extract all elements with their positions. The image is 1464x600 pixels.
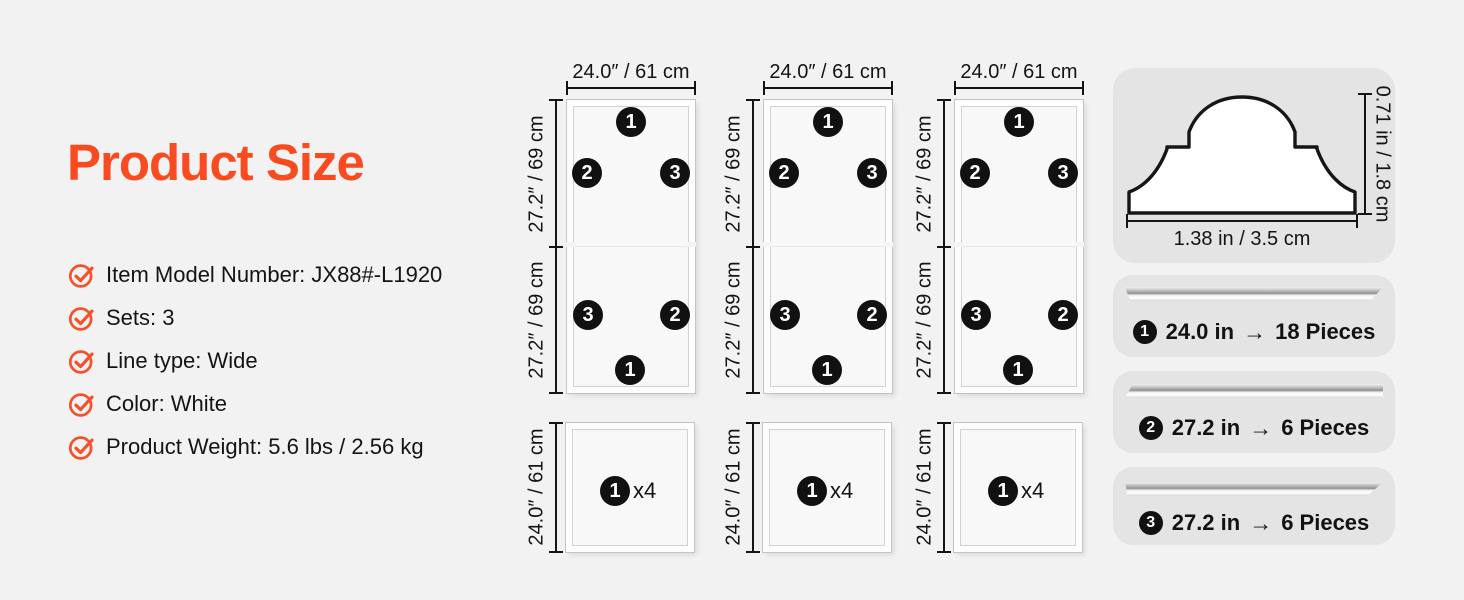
spec-item-sets: Sets: 3	[68, 303, 442, 333]
square-count-label: x4	[633, 478, 656, 504]
dim-line-profile-width	[1127, 220, 1357, 222]
badge-1: 1	[615, 355, 645, 385]
molding-frame-square	[954, 423, 1082, 552]
square-count-label: x4	[830, 478, 853, 504]
check-icon	[68, 434, 95, 461]
spec-item-color: Color: White	[68, 389, 442, 419]
molding-frame-square	[566, 423, 694, 552]
piece-card-3: 3 27.2 in → 6 Pieces	[1113, 467, 1395, 545]
dim-label-height-lower: 27.2″ / 69 cm	[526, 261, 549, 378]
arrow-right-icon: →	[1243, 319, 1266, 346]
dim-line-height-lower	[752, 247, 754, 393]
badge-3: 3	[1139, 511, 1163, 535]
dim-label-square: 24.0″ / 61 cm	[526, 428, 549, 545]
dim-label-square: 24.0″ / 61 cm	[914, 428, 937, 545]
badge-2: 2	[1048, 300, 1078, 330]
dim-line-profile-height	[1364, 94, 1366, 214]
frame-seam-right	[884, 242, 893, 247]
badge-1: 1	[813, 107, 843, 137]
piece-card-1: 1 24.0 in → 18 Pieces	[1113, 275, 1395, 357]
badge-2: 2	[572, 158, 602, 188]
molding-frame-tall	[764, 100, 892, 393]
frame-seam-left	[954, 242, 963, 247]
piece-length: 27.2 in	[1172, 510, 1240, 536]
check-icon	[68, 391, 95, 418]
layout-diagram-column-2: 24.0″ / 61 cm 1 2 3 3 2 1 27.2″ / 69 cm …	[764, 55, 892, 555]
molding-profile-drawing	[1127, 92, 1357, 216]
square-count-label: x4	[1021, 478, 1044, 504]
dim-line-width	[567, 87, 695, 89]
spec-item-model: Item Model Number: JX88#-L1920	[68, 260, 442, 290]
dim-label-height-upper: 27.2″ / 69 cm	[723, 115, 746, 232]
spec-item-model-text: Item Model Number: JX88#-L1920	[106, 262, 442, 288]
arrow-right-icon: →	[1249, 415, 1272, 442]
layout-diagram-column-1: 24.0″ / 61 cm 1 2 3 3 2 1 27.2″ / 69 cm …	[567, 55, 695, 555]
frame-mid-seam-line	[764, 246, 892, 247]
badge-2: 2	[660, 300, 690, 330]
dim-label-profile-width: 1.38 in / 3.5 cm	[1127, 228, 1357, 251]
profile-card: 0.71 in / 1.8 cm 1.38 in / 3.5 cm	[1113, 68, 1395, 263]
dim-line-width	[764, 87, 892, 89]
spec-item-line-type: Line type: Wide	[68, 346, 442, 376]
dim-line-height-lower	[555, 247, 557, 393]
badge-3: 3	[961, 300, 991, 330]
piece-count: 6 Pieces	[1281, 510, 1369, 536]
frame-seam-left	[763, 242, 772, 247]
dim-line-square	[555, 423, 557, 552]
piece-row: 3 27.2 in → 6 Pieces	[1113, 510, 1395, 536]
spec-item-color-text: Color: White	[106, 391, 227, 417]
molding-strip-image	[1125, 482, 1383, 496]
piece-length: 24.0 in	[1166, 319, 1234, 345]
badge-1: 1	[1133, 320, 1157, 344]
page-title: Product Size	[67, 133, 364, 192]
check-icon	[68, 348, 95, 375]
piece-row: 1 24.0 in → 18 Pieces	[1113, 319, 1395, 345]
dim-label-height-lower: 27.2″ / 69 cm	[914, 261, 937, 378]
molding-frame-tall	[567, 100, 695, 393]
badge-1: 1	[1004, 107, 1034, 137]
dim-label-height-upper: 27.2″ / 69 cm	[914, 115, 937, 232]
dim-line-height-upper	[555, 100, 557, 247]
product-size-infographic: Product Size Item Model Number: JX88#-L1…	[0, 0, 1464, 600]
piece-row: 2 27.2 in → 6 Pieces	[1113, 415, 1395, 441]
badge-1: 1	[600, 476, 630, 506]
molding-strip-image	[1125, 384, 1383, 398]
arrow-right-icon: →	[1249, 510, 1272, 537]
badge-3: 3	[573, 300, 603, 330]
spec-item-weight-text: Product Weight: 5.6 lbs / 2.56 kg	[106, 434, 424, 460]
check-icon	[68, 305, 95, 332]
layout-diagram-column-3: 24.0″ / 61 cm 1 2 3 3 2 1 27.2″ / 69 cm …	[955, 55, 1083, 555]
check-icon	[68, 262, 95, 289]
badge-3: 3	[770, 300, 800, 330]
badge-1: 1	[1003, 355, 1033, 385]
badge-2: 2	[769, 158, 799, 188]
badge-1: 1	[812, 355, 842, 385]
badge-1: 1	[797, 476, 827, 506]
spec-list: Item Model Number: JX88#-L1920 Sets: 3 L…	[68, 260, 442, 475]
dim-line-height-lower	[943, 247, 945, 393]
piece-length: 27.2 in	[1172, 415, 1240, 441]
frame-mid-seam-line	[955, 246, 1083, 247]
badge-2: 2	[1139, 416, 1163, 440]
molding-frame-tall	[955, 100, 1083, 393]
badge-3: 3	[1048, 158, 1078, 188]
badge-1: 1	[616, 107, 646, 137]
badge-3: 3	[857, 158, 887, 188]
badge-3: 3	[660, 158, 690, 188]
dim-line-height-upper	[943, 100, 945, 247]
piece-count: 18 Pieces	[1275, 319, 1375, 345]
dim-label-height-lower: 27.2″ / 69 cm	[723, 261, 746, 378]
badge-2: 2	[857, 300, 887, 330]
dim-label-height-upper: 27.2″ / 69 cm	[526, 115, 549, 232]
dim-line-height-upper	[752, 100, 754, 247]
spec-item-line-type-text: Line type: Wide	[106, 348, 258, 374]
dim-line-width	[955, 87, 1083, 89]
molding-frame-square	[763, 423, 891, 552]
frame-seam-left	[566, 242, 575, 247]
molding-strip-image	[1125, 287, 1383, 301]
frame-seam-right	[1075, 242, 1084, 247]
dim-label-square: 24.0″ / 61 cm	[723, 428, 746, 545]
badge-2: 2	[960, 158, 990, 188]
dim-line-square	[943, 423, 945, 552]
dim-line-square	[752, 423, 754, 552]
piece-card-2: 2 27.2 in → 6 Pieces	[1113, 371, 1395, 453]
badge-1: 1	[988, 476, 1018, 506]
dim-label-profile-height: 0.71 in / 1.8 cm	[1371, 86, 1394, 223]
spec-item-weight: Product Weight: 5.6 lbs / 2.56 kg	[68, 432, 442, 462]
spec-item-sets-text: Sets: 3	[106, 305, 174, 331]
frame-mid-seam-line	[567, 246, 695, 247]
frame-seam-right	[687, 242, 696, 247]
piece-count: 6 Pieces	[1281, 415, 1369, 441]
